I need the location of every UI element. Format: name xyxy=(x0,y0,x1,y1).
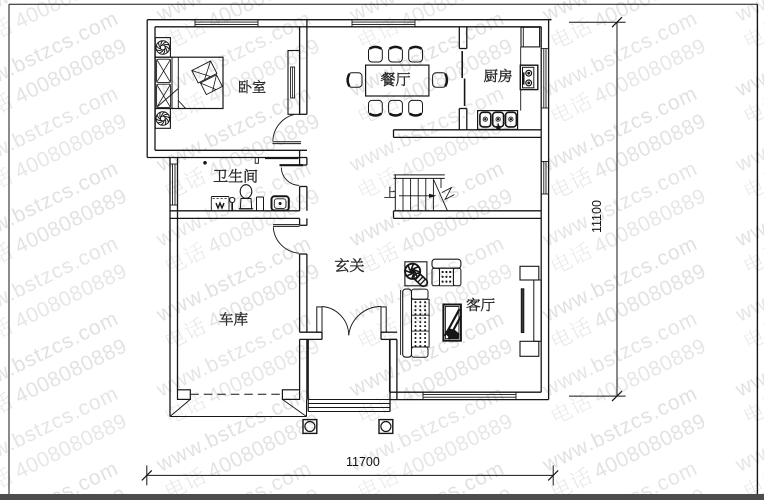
svg-text:11700: 11700 xyxy=(346,455,380,469)
svg-text:11100: 11100 xyxy=(590,200,604,233)
